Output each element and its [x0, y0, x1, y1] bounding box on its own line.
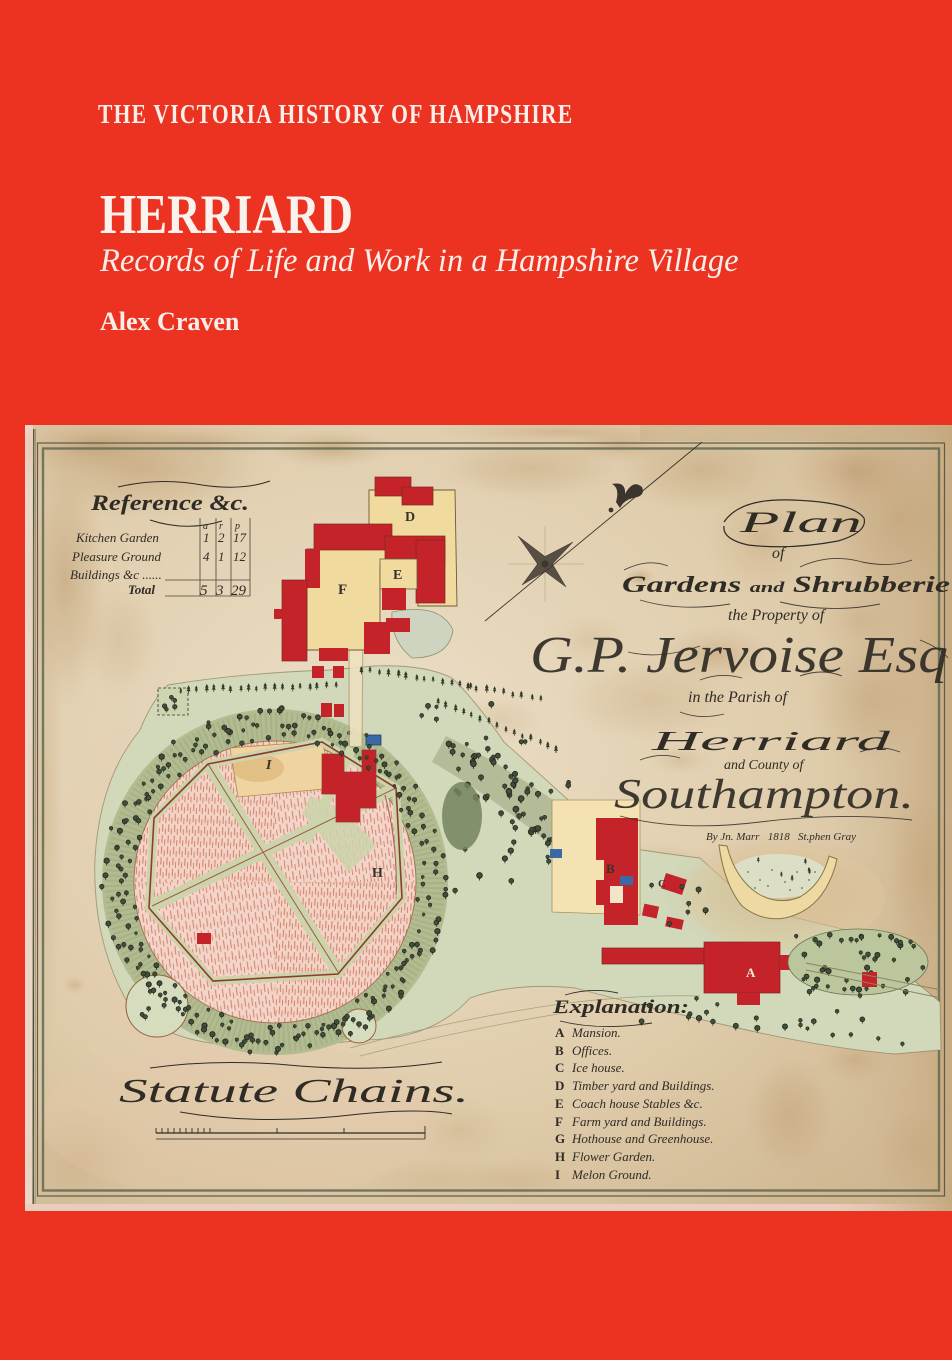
svg-text:Southampton.: Southampton.: [614, 772, 914, 818]
svg-text:Melon Ground.: Melon Ground.: [571, 1167, 652, 1182]
svg-text:I: I: [555, 1167, 560, 1182]
svg-text:Farm yard and Buildings.: Farm yard and Buildings.: [571, 1114, 707, 1129]
svg-text:Plan: Plan: [738, 506, 862, 539]
svg-text:C: C: [555, 1060, 564, 1075]
svg-text:Ice house.: Ice house.: [571, 1060, 625, 1075]
svg-text:in the Parish of: in the Parish of: [688, 689, 790, 706]
svg-text:G: G: [555, 1131, 565, 1146]
svg-text:the Property of: the Property of: [728, 607, 827, 624]
svg-text:4: 4: [203, 549, 210, 564]
svg-text:Timber yard and Buildings.: Timber yard and Buildings.: [572, 1078, 715, 1093]
svg-text:B: B: [555, 1043, 564, 1058]
svg-text:29: 29: [231, 583, 247, 599]
svg-text:Total: Total: [128, 582, 155, 597]
svg-text:A: A: [746, 965, 756, 980]
svg-text:D: D: [555, 1078, 564, 1093]
svg-text:C: C: [658, 878, 666, 890]
svg-text:D: D: [405, 510, 415, 525]
svg-text:Reference &c.: Reference &c.: [90, 490, 249, 515]
svg-text:Explanation:: Explanation:: [552, 997, 689, 1018]
svg-text:3: 3: [215, 583, 224, 599]
svg-text:I: I: [265, 758, 272, 773]
svg-text:A: A: [555, 1025, 565, 1040]
svg-text:Gardens and Shrubberie: Gardens and Shrubberie: [622, 572, 950, 597]
svg-text:B: B: [606, 861, 615, 876]
svg-text:By Jn. Marr 1818 St.phen G: By Jn. Marr 1818 St.phen Gray: [706, 831, 856, 843]
svg-text:F: F: [338, 582, 347, 598]
svg-text:Buildings &c ......: Buildings &c ......: [70, 567, 162, 582]
svg-text:1: 1: [218, 549, 225, 564]
svg-text:17: 17: [233, 530, 247, 545]
svg-text:Flower Garden.: Flower Garden.: [571, 1149, 655, 1164]
svg-text:12: 12: [233, 549, 247, 564]
svg-text:G.P. Jervoise Esq: G.P. Jervoise Esq: [530, 627, 948, 684]
svg-text:Mansion.: Mansion.: [571, 1025, 621, 1040]
svg-text:F: F: [555, 1114, 563, 1129]
svg-text:Herriard: Herriard: [650, 726, 892, 756]
svg-text:H: H: [555, 1149, 565, 1164]
svg-text:Offices.: Offices.: [572, 1043, 612, 1058]
svg-text:and County of: and County of: [724, 758, 805, 773]
svg-text:Statute Chains.: Statute Chains.: [119, 1073, 469, 1110]
svg-text:Pleasure Ground: Pleasure Ground: [71, 549, 161, 564]
svg-text:E: E: [555, 1096, 564, 1111]
svg-text:Coach house Stables &c.: Coach house Stables &c.: [572, 1096, 703, 1111]
svg-text:Hothouse and Greenhouse.: Hothouse and Greenhouse.: [571, 1131, 713, 1146]
svg-text:E: E: [393, 568, 402, 583]
svg-text:1: 1: [203, 530, 210, 545]
svg-text:Kitchen Garden: Kitchen Garden: [75, 530, 159, 545]
svg-text:H: H: [372, 866, 383, 881]
svg-text:2: 2: [218, 530, 225, 545]
svg-text:5: 5: [200, 583, 208, 599]
